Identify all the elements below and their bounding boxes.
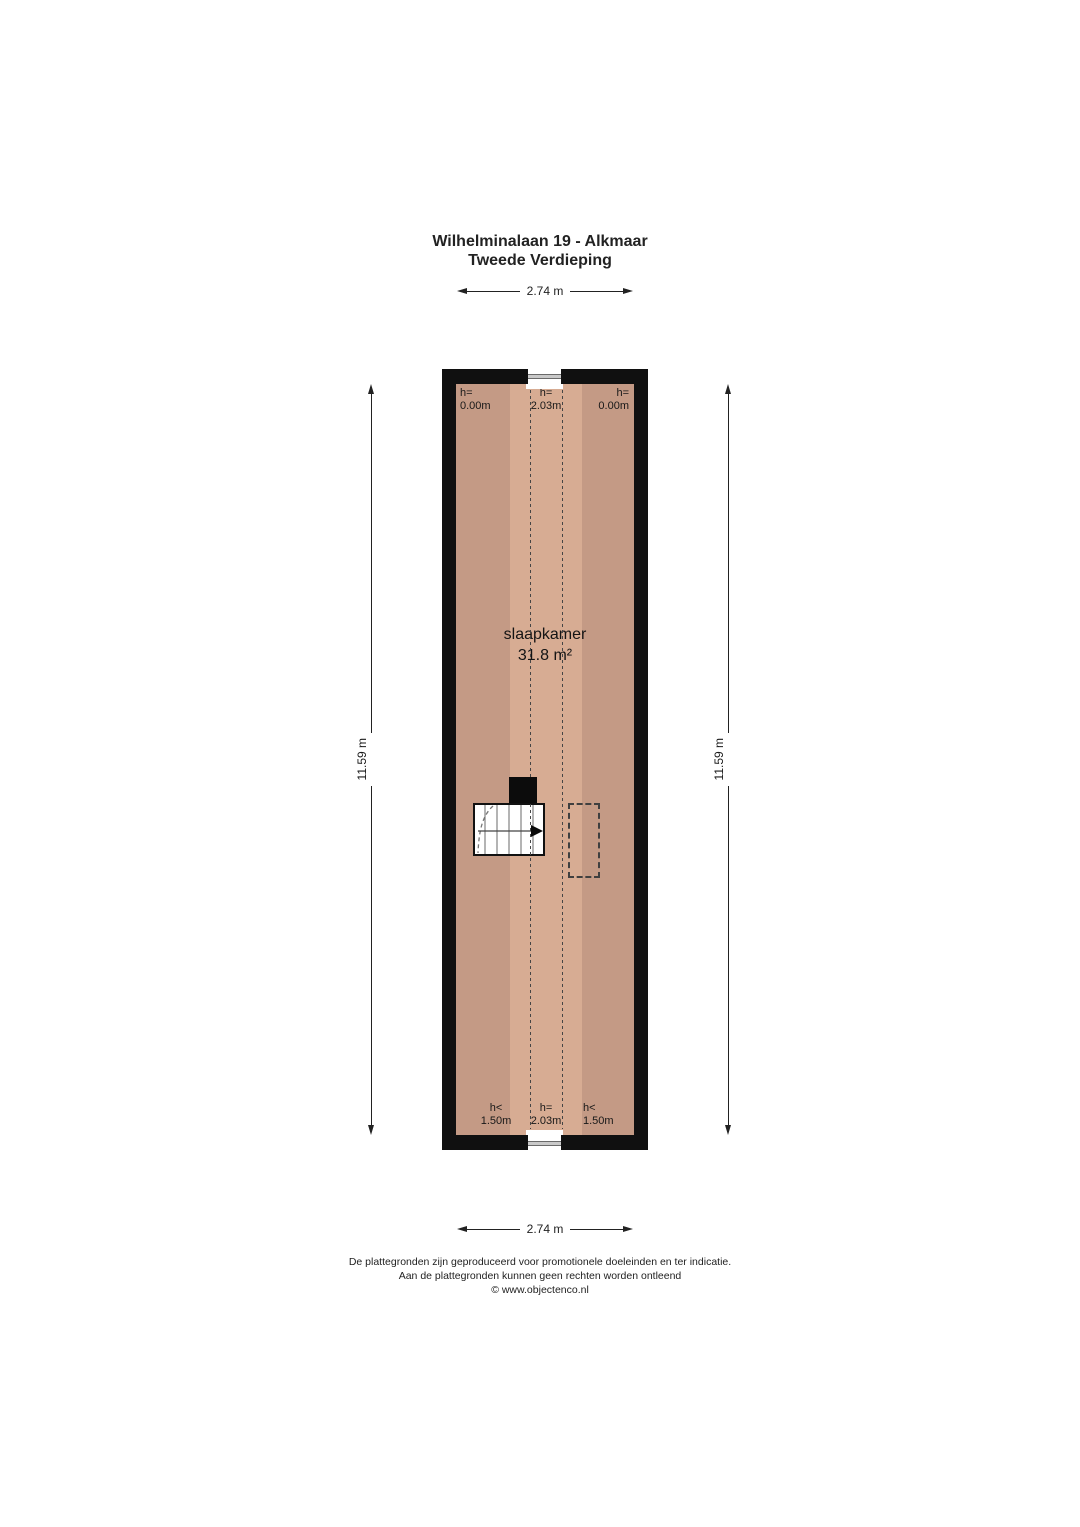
dim-arrow-up-icon — [368, 384, 374, 394]
height-label-value: 2.03m — [510, 400, 582, 413]
dimension-right-height: 11.59 m — [721, 384, 735, 1135]
height-label-symbol: h= — [460, 387, 491, 400]
height-contour-line-right — [562, 390, 563, 1129]
floorplan-page: Wilhelminalaan 19 - Alkmaar Tweede Verdi… — [0, 0, 1080, 1527]
room-name: slaapkamer — [456, 624, 634, 645]
roof-window-outline — [568, 803, 600, 878]
dim-arrow-down-icon — [368, 1125, 374, 1135]
chimney — [509, 777, 537, 803]
dim-line — [467, 1229, 520, 1230]
dimension-top-width: 2.74 m — [457, 284, 633, 298]
dim-line — [570, 291, 623, 292]
room-area: 31.8 m² — [456, 645, 634, 666]
window-glazing — [526, 374, 563, 379]
height-label-top-left: h= 0.00m — [460, 387, 491, 413]
height-label-value: 0.00m — [460, 400, 491, 413]
height-label-value: 1.50m — [583, 1115, 614, 1128]
height-label-symbol: h= — [510, 1102, 582, 1115]
window-top — [526, 369, 563, 389]
dim-arrow-down-icon — [725, 1125, 731, 1135]
height-label-bottom-right: h< 1.50m — [583, 1102, 614, 1128]
dim-label-left-height: 11.59 m — [355, 738, 369, 780]
dim-line — [728, 786, 729, 1125]
height-contour-line-left — [530, 390, 531, 1129]
height-label-bottom-center: h= 2.03m — [510, 1102, 582, 1128]
copyright-line: © www.objectenco.nl — [0, 1283, 1080, 1297]
window-jamb — [526, 369, 528, 384]
height-label-top-right: h= 0.00m — [598, 387, 629, 413]
dimension-left-height: 11.59 m — [364, 384, 378, 1135]
title-floor: Tweede Verdieping — [0, 251, 1080, 270]
dim-line — [371, 394, 372, 733]
dim-line — [467, 291, 520, 292]
height-label-symbol: h< — [583, 1102, 614, 1115]
height-label-value: 2.03m — [510, 1115, 582, 1128]
window-jamb — [561, 1135, 563, 1150]
dim-label-bottom-width: 2.74 m — [520, 1222, 571, 1236]
window-jamb — [561, 369, 563, 384]
dimension-bottom-width: 2.74 m — [457, 1222, 633, 1236]
dim-line — [371, 786, 372, 1125]
disclaimer-line-2: Aan de plattegronden kunnen geen rechten… — [0, 1269, 1080, 1283]
room-slaapkamer: h= 0.00m h= 2.03m h= 0.00m h< 1.50m h= 2… — [456, 384, 634, 1135]
dim-arrow-right-icon — [623, 1226, 633, 1232]
dim-arrow-left-icon — [457, 288, 467, 294]
room-label: slaapkamer 31.8 m² — [456, 624, 634, 666]
staircase — [473, 803, 545, 856]
title-address: Wilhelminalaan 19 - Alkmaar — [0, 232, 1080, 251]
ceiling-height-strip — [510, 384, 582, 1135]
footer-disclaimer: De plattegronden zijn geproduceerd voor … — [0, 1255, 1080, 1297]
height-label-value: 0.00m — [598, 400, 629, 413]
floor-plan: h= 0.00m h= 2.03m h= 0.00m h< 1.50m h= 2… — [442, 369, 648, 1150]
dim-arrow-right-icon — [623, 288, 633, 294]
height-label-symbol: h= — [598, 387, 629, 400]
dim-arrow-up-icon — [725, 384, 731, 394]
dim-label-top-width: 2.74 m — [520, 284, 571, 298]
dim-label-right-height: 11.59 m — [712, 738, 726, 780]
window-bottom — [526, 1130, 563, 1150]
dim-arrow-left-icon — [457, 1226, 467, 1232]
height-label-top-center: h= 2.03m — [510, 387, 582, 413]
page-title: Wilhelminalaan 19 - Alkmaar Tweede Verdi… — [0, 232, 1080, 270]
disclaimer-line-1: De plattegronden zijn geproduceerd voor … — [0, 1255, 1080, 1269]
dim-line — [728, 394, 729, 733]
window-glazing — [526, 1141, 563, 1146]
window-jamb — [526, 1135, 528, 1150]
dim-line — [570, 1229, 623, 1230]
